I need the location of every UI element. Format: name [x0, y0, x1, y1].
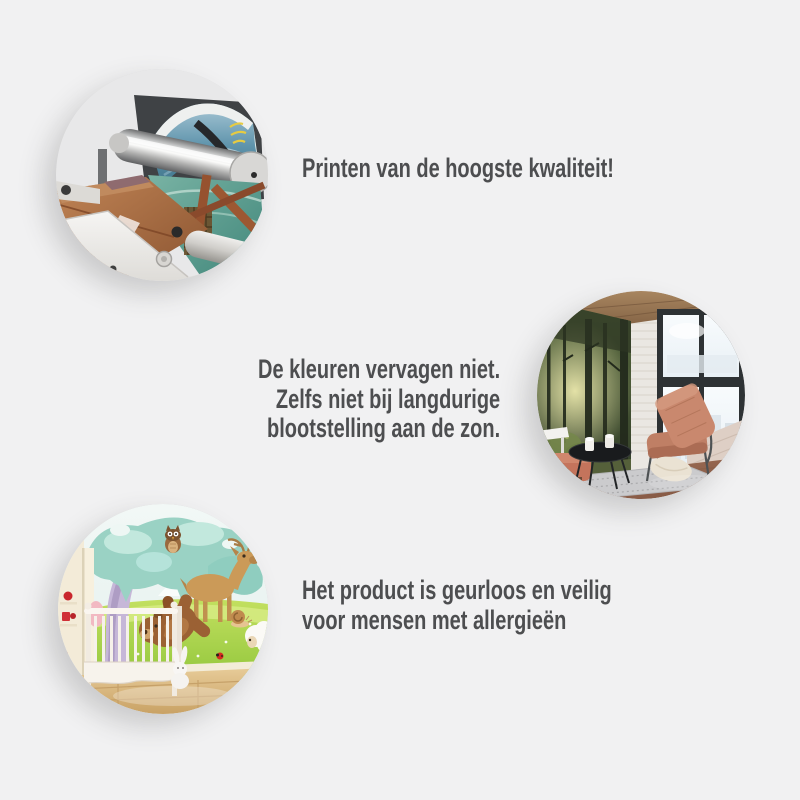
feature-text-fade-resistant: De kleuren vervagen niet. Zelfs niet bij…	[258, 355, 500, 444]
feature-image-allergy-safe	[58, 504, 268, 714]
printing-machine-photo	[56, 69, 268, 281]
feature-image-fade-resistant	[537, 291, 745, 499]
product-benefits-section: Printen van de hoogste kwaliteit!	[0, 0, 800, 800]
living-room-forest-mural-photo	[537, 291, 745, 499]
feature-text-print-quality: Printen van de hoogste kwaliteit!	[302, 154, 614, 184]
feature-image-print-quality	[56, 69, 268, 281]
feature-text-allergy-safe: Het product is geurloos en veilig voor m…	[302, 576, 612, 635]
nursery-cartoon-mural-photo	[58, 504, 268, 714]
